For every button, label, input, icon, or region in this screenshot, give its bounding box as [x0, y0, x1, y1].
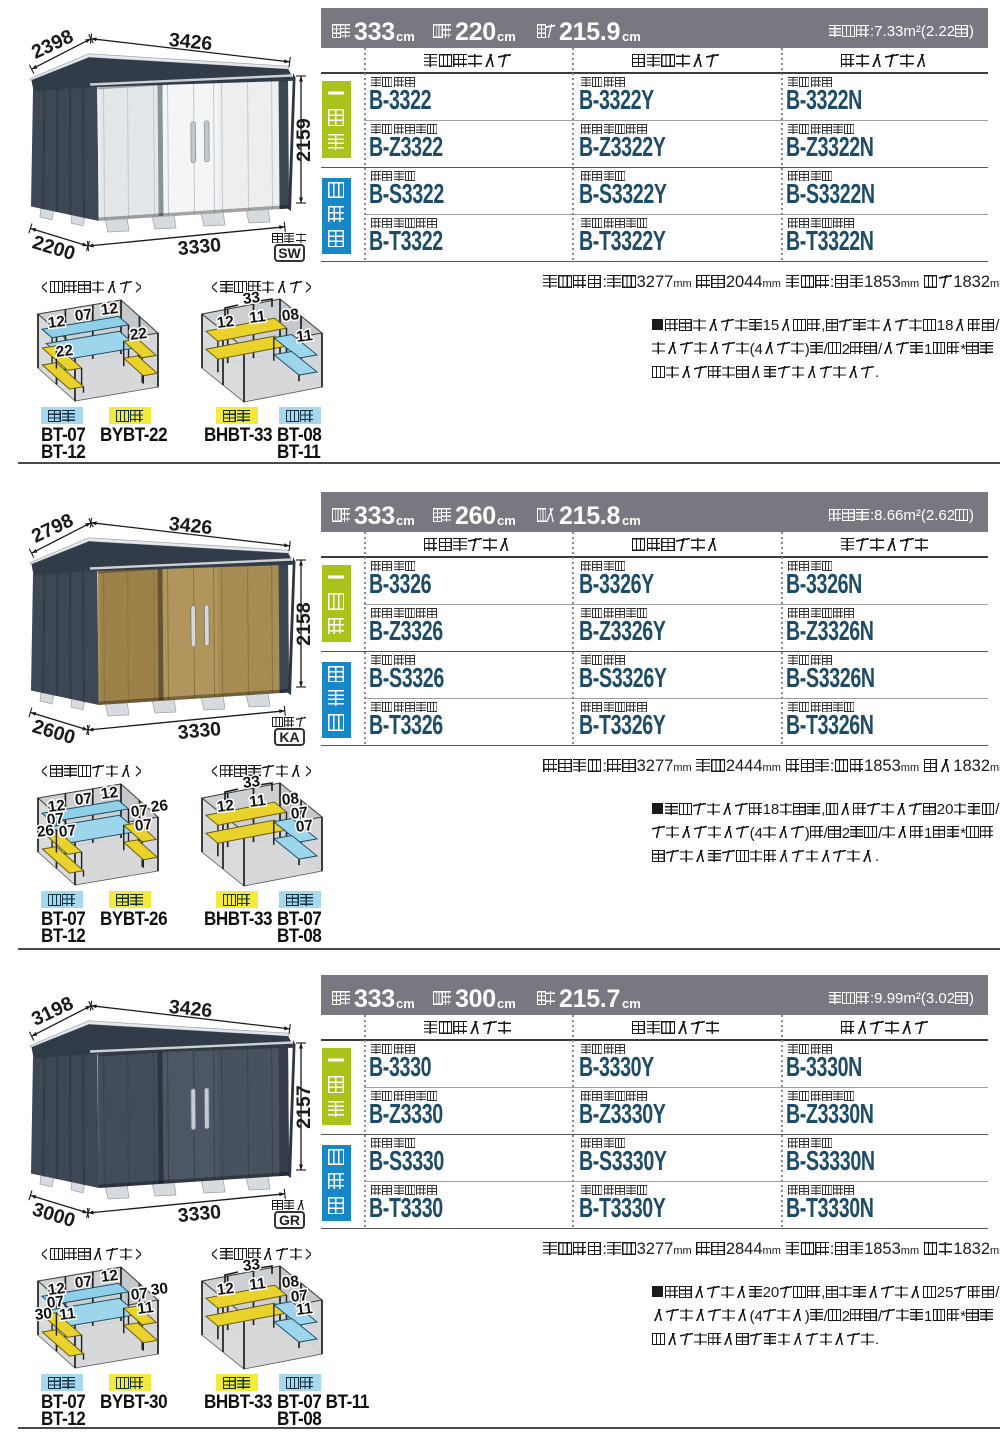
svg-text:12: 12 — [216, 1280, 235, 1299]
svg-text:2200: 2200 — [30, 231, 78, 265]
svg-text:11: 11 — [295, 1300, 314, 1319]
svg-text:2157: 2157 — [293, 1085, 315, 1128]
svg-text:3330: 3330 — [177, 1201, 222, 1227]
svg-text:11: 11 — [136, 1299, 155, 1318]
svg-text:30: 30 — [34, 1305, 53, 1324]
svg-text:2158: 2158 — [293, 602, 315, 646]
svg-text:3426: 3426 — [168, 996, 214, 1022]
svg-text:12: 12 — [47, 313, 66, 332]
svg-text:3330: 3330 — [177, 234, 222, 260]
svg-text:3426: 3426 — [168, 29, 214, 55]
svg-text:11: 11 — [295, 327, 314, 346]
svg-text:33: 33 — [242, 773, 262, 792]
svg-text:07: 07 — [134, 816, 153, 835]
svg-text:33: 33 — [242, 289, 262, 308]
svg-text:26: 26 — [36, 822, 56, 841]
svg-text:12: 12 — [216, 313, 235, 332]
svg-text:2159: 2159 — [293, 118, 315, 162]
svg-text:07: 07 — [58, 822, 77, 841]
svg-text:08: 08 — [281, 306, 301, 325]
svg-text:3000: 3000 — [30, 1198, 78, 1232]
svg-text:11: 11 — [58, 1305, 77, 1324]
svg-text:07: 07 — [74, 306, 93, 325]
svg-text:11: 11 — [248, 1275, 267, 1294]
svg-text:07: 07 — [74, 790, 93, 809]
svg-text:12: 12 — [100, 1267, 119, 1286]
svg-text:07: 07 — [74, 1273, 93, 1292]
svg-text:22: 22 — [55, 342, 74, 361]
svg-text:12: 12 — [100, 300, 119, 319]
svg-text:26: 26 — [150, 797, 170, 816]
svg-text:07: 07 — [295, 817, 314, 836]
svg-text:30: 30 — [150, 1280, 169, 1299]
svg-text:3426: 3426 — [168, 513, 214, 539]
svg-text:12: 12 — [216, 797, 235, 816]
svg-text:11: 11 — [248, 792, 267, 811]
svg-text:2600: 2600 — [30, 715, 78, 749]
svg-text:22: 22 — [129, 325, 148, 344]
svg-text:12: 12 — [100, 784, 119, 803]
svg-text:3330: 3330 — [177, 718, 222, 744]
svg-text:33: 33 — [242, 1256, 262, 1275]
svg-text:11: 11 — [248, 308, 267, 327]
